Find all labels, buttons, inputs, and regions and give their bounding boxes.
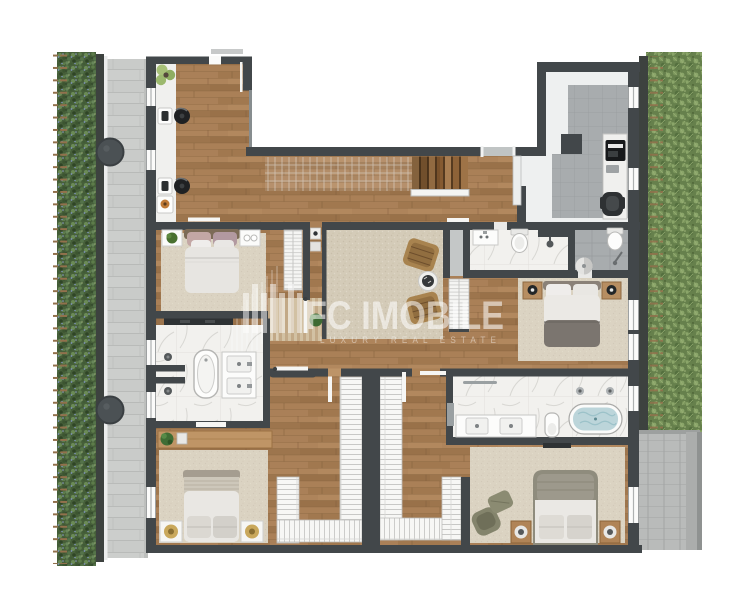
svg-text:LUXURY REAL ESTATE: LUXURY REAL ESTATE	[320, 335, 501, 346]
svg-text:FC IMOBILE: FC IMOBILE	[306, 294, 504, 338]
